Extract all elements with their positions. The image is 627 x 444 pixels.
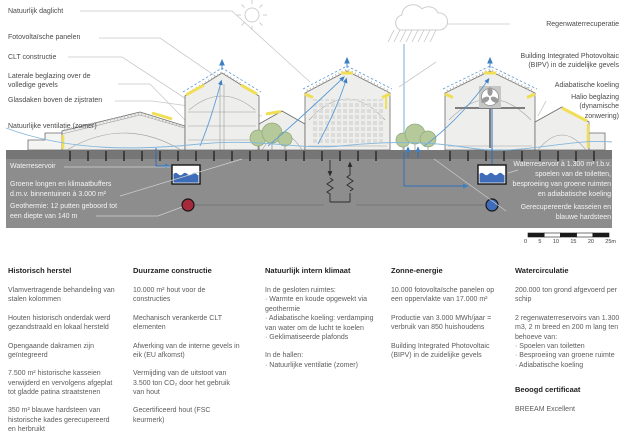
- scale-tick: 10: [553, 239, 559, 245]
- column-paragraph: Productie van 3.000 MWh/jaar = verbruik …: [391, 314, 501, 333]
- infographic-canvas: Natuurlijk daglicht Fotovoltaïsche panel…: [0, 0, 627, 400]
- label-adiabatische-koeling: Adiabatische koeling: [555, 81, 619, 90]
- column-paragraph: In de gesloten ruimtes: · Warmte en koud…: [265, 286, 379, 342]
- column-title: Historisch herstel: [8, 266, 118, 275]
- scale-bar-labels: 0 5 10 15 20 25m: [524, 239, 616, 245]
- label-laterale-beglazing: Laterale beglazing over de volledige gev…: [8, 72, 91, 91]
- column-paragraph: Mechanisch verankerde CLT elementen: [133, 314, 241, 333]
- column-title: Watercirculatie: [515, 266, 621, 275]
- label-natuurlijke-ventilatie: Natuurlijke ventilatie (zomer): [8, 122, 97, 131]
- column-zonne-energie: Zonne-energie 10.000 fotovoltaïsche pane…: [391, 266, 501, 369]
- scale-tick: 5: [538, 239, 541, 245]
- column-title: Natuurlijk intern klimaat: [265, 266, 379, 275]
- water-reservoir-icon-left: [172, 165, 200, 184]
- label-waterreservoir: Waterreservoir: [10, 162, 56, 172]
- column-paragraph: Gecertificeerd hout (FSC keurmerk): [133, 406, 241, 425]
- column-paragraph: Opengaande dakramen zijn geïntegreerd: [8, 342, 118, 361]
- column-paragraph: Building Integrated Photovoltaic (BIPV) …: [391, 342, 501, 361]
- scale-tick: 0: [524, 239, 527, 245]
- column-paragraph: 7.500 m² historische kasseien verwijderd…: [8, 369, 118, 397]
- column-natuurlijk-intern-klimaat: Natuurlijk intern klimaat In de gesloten…: [265, 266, 379, 379]
- label-gerecupereerde-kasseien: Gerecupereerde kasseien en blauwe hardst…: [521, 203, 611, 223]
- label-halio-beglazing: Halio beglazing (dynamische zonwering): [571, 93, 619, 121]
- column-paragraph: In de hallen: · Natuurlijke ventilatie (…: [265, 351, 379, 370]
- column-paragraph: Vlamvertragende behandeling van stalen k…: [8, 286, 118, 305]
- column-paragraph: Afwerking van de interne gevels in eik (…: [133, 342, 241, 361]
- certificate-value: BREEAM Excellent: [515, 405, 621, 414]
- column-paragraph: Houten historisch onderdak werd gezandst…: [8, 314, 118, 333]
- column-title: Duurzame constructie: [133, 266, 241, 275]
- label-natuurlijk-daglicht: Natuurlijk daglicht: [8, 7, 63, 16]
- column-paragraph: 350 m² blauwe hardsteen van historische …: [8, 406, 118, 434]
- warm-well-marker: [182, 199, 194, 211]
- scale-tick: 25m: [605, 239, 616, 245]
- window-grid-wall: [312, 99, 383, 145]
- label-waterreservoir-1300: Waterreservoir à 1.300 m³ t.b.v. spoelen…: [513, 160, 611, 200]
- label-geothermie: Geothermie: 12 putten geboord tot een di…: [10, 202, 117, 222]
- label-clt-constructie: CLT constructie: [8, 53, 56, 62]
- label-groene-longen: Groene longen en klimaatbuffers d.m.v. b…: [10, 180, 111, 200]
- label-regenwaterrecuperatie: Regenwaterrecuperatie: [546, 20, 619, 29]
- tall-building-b: [185, 73, 259, 150]
- scale-tick: 20: [588, 239, 594, 245]
- certificate-title: Beoogd certificaat: [515, 385, 621, 394]
- water-reservoir-icon-right: [478, 165, 506, 184]
- label-fotovoltaische-panelen: Fotovoltaïsche panelen: [8, 33, 80, 42]
- column-paragraph: 2 regenwaterreservoirs van 1.300 m3, 2 m…: [515, 314, 621, 370]
- fan-icon: [479, 86, 501, 108]
- column-duurzame-constructie: Duurzame constructie 10.000 m² hout voor…: [133, 266, 241, 434]
- rain-cloud-icon: [388, 5, 448, 42]
- column-paragraph: 200.000 ton grond afgevoerd per schip: [515, 286, 621, 305]
- column-title: Zonne-energie: [391, 266, 501, 275]
- column-paragraph: 10.000 fotovoltaïsche panelen op een opp…: [391, 286, 501, 305]
- column-historisch-herstel: Historisch herstel Vlamvertragende behan…: [8, 266, 118, 444]
- column-paragraph: 10.000 m² hout voor de constructies: [133, 286, 241, 305]
- scale-bar: [528, 233, 609, 237]
- sun-icon: [237, 0, 267, 30]
- label-glasdaken: Glasdaken boven de zijstraten: [8, 96, 102, 105]
- scale-tick: 15: [570, 239, 576, 245]
- column-paragraph: Vermijding van de uitstoot van 3.500 ton…: [133, 369, 241, 397]
- label-bipv: Building Integrated Photovoltaic (BIPV) …: [521, 52, 619, 71]
